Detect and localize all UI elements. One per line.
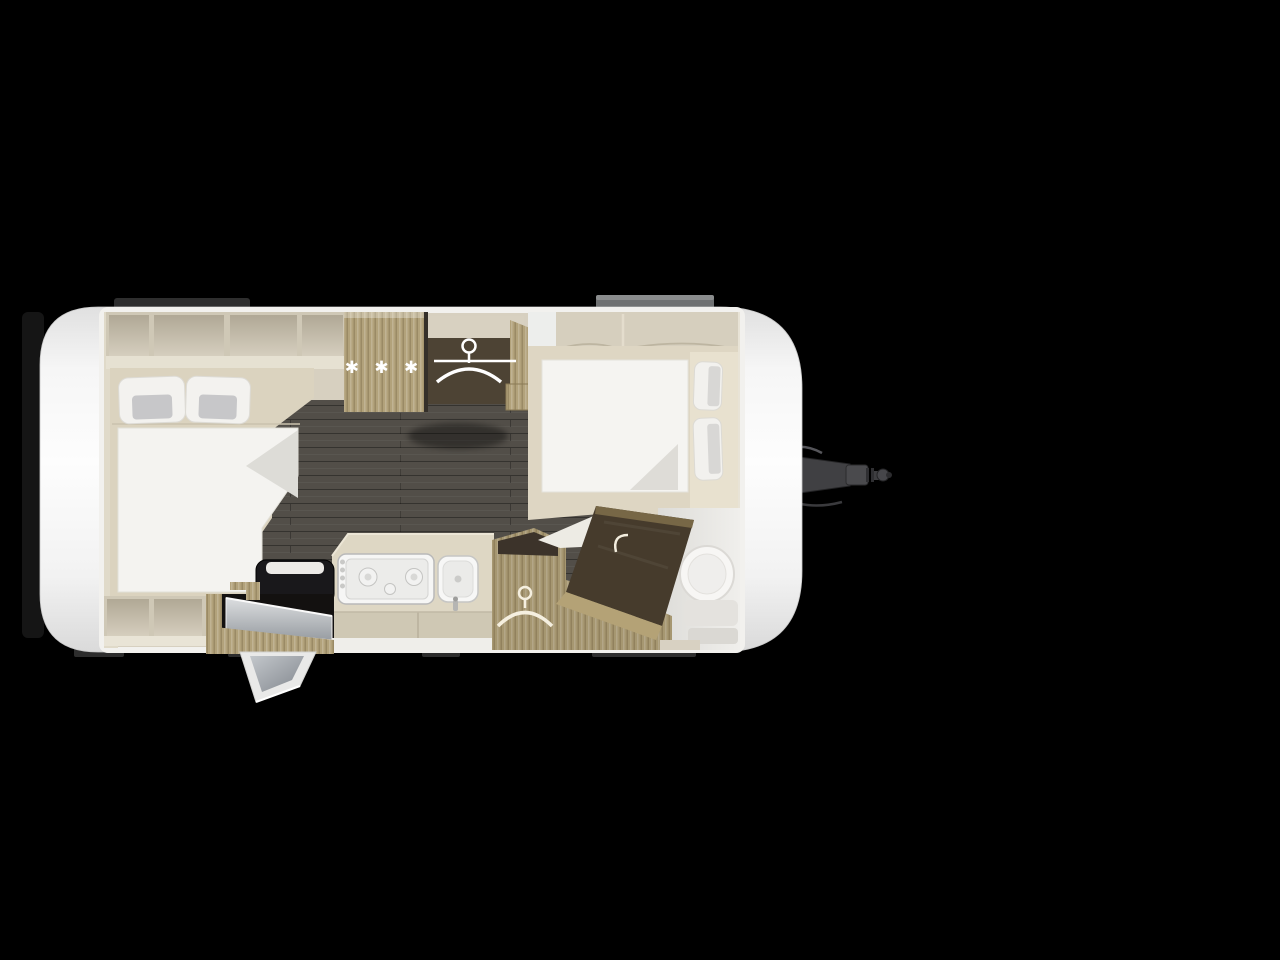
pillow [693, 418, 723, 481]
seat-trim [266, 562, 324, 574]
freezer-stars-icon: ✱ ✱ ✱ [345, 358, 424, 378]
coupling-body [846, 465, 868, 485]
floorplan-svg: ✱ ✱ ✱ [0, 0, 1280, 960]
kitchen-kickboard [332, 638, 494, 650]
toilet-tank [684, 600, 738, 626]
hob-knob [340, 584, 345, 589]
coupling-rib [871, 468, 874, 482]
locker-bay [107, 599, 149, 639]
sink-faucet [453, 600, 458, 611]
locker-bay [109, 315, 149, 359]
burner [385, 584, 396, 595]
hob-knob [340, 576, 345, 581]
cabinet-gap [424, 312, 428, 412]
wardrobe-shadow [408, 423, 508, 449]
kitchen-front [332, 612, 494, 640]
wardrobe-drawer [506, 384, 530, 410]
coupling-rib [866, 468, 869, 482]
roof-tab-highlight [596, 295, 714, 300]
burner-center [411, 574, 418, 581]
fridge-freezer: ✱ ✱ ✱ [344, 312, 428, 412]
hob-3-burner [338, 554, 434, 604]
locker-bay [154, 599, 202, 639]
front-french-bed [528, 346, 738, 528]
pillow [693, 362, 723, 411]
hob-knob [340, 560, 345, 565]
kitchen-block [332, 534, 494, 650]
bottom-wall-trim [660, 640, 700, 650]
wardrobe-top-strip [428, 316, 524, 340]
locker-bay [230, 315, 297, 359]
pillow [118, 376, 186, 424]
sink-drain [455, 576, 462, 583]
wardrobe-rear [428, 316, 530, 410]
faucet-base [453, 597, 458, 602]
wardrobe-interior [428, 338, 510, 404]
overhead-lockers-rear [106, 312, 345, 369]
hob-knob [340, 568, 345, 573]
locker-lip [106, 356, 345, 369]
coupling-tip [886, 472, 892, 478]
toilet-seat [688, 554, 726, 594]
burner-center [365, 574, 372, 581]
locker-bay [154, 315, 224, 359]
pillow [185, 376, 251, 424]
locker-bay [302, 315, 343, 359]
fridge-top-edge [344, 312, 424, 318]
caravan-floorplan-scene: ✱ ✱ ✱ [0, 0, 1280, 960]
